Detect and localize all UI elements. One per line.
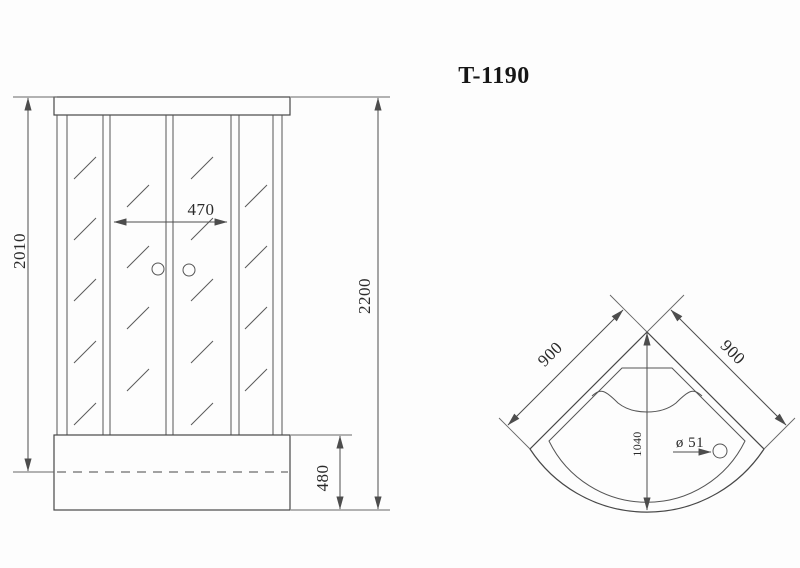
dim-label-side-left: 900 [534,338,567,371]
dim-label-glass-height: 2010 [10,233,29,269]
dim-label-depth: 1040 [630,431,644,456]
page-title: T-1190 [458,63,529,89]
dim-drain: ø 51 [673,435,711,452]
dim-glass-height: 2010 [10,97,57,472]
door-handle-right-icon [183,264,195,276]
dim-label-door-width: 470 [188,200,215,219]
dim-side-left: 900 [499,295,647,449]
dim-depth: 1040 [630,333,647,510]
top-rail [54,97,290,115]
frame-profiles [57,115,282,435]
drain-hole [713,444,727,458]
dim-label-drain: ø 51 [676,435,704,451]
dim-side-right: 900 [647,295,795,449]
drawing-page: T-1190 [0,0,800,568]
plan-view: 900 900 1040 ø 51 [499,295,795,512]
dim-label-total-height: 2200 [355,278,374,314]
dim-label-side-right: 900 [717,336,750,369]
door-handle-left-icon [152,263,164,275]
dim-tray-height: 480 [291,435,352,509]
dim-label-tray-height: 480 [313,465,332,492]
front-elevation-view: 2010 470 2200 480 [10,97,390,510]
technical-drawing-svg: T-1190 [0,0,800,568]
